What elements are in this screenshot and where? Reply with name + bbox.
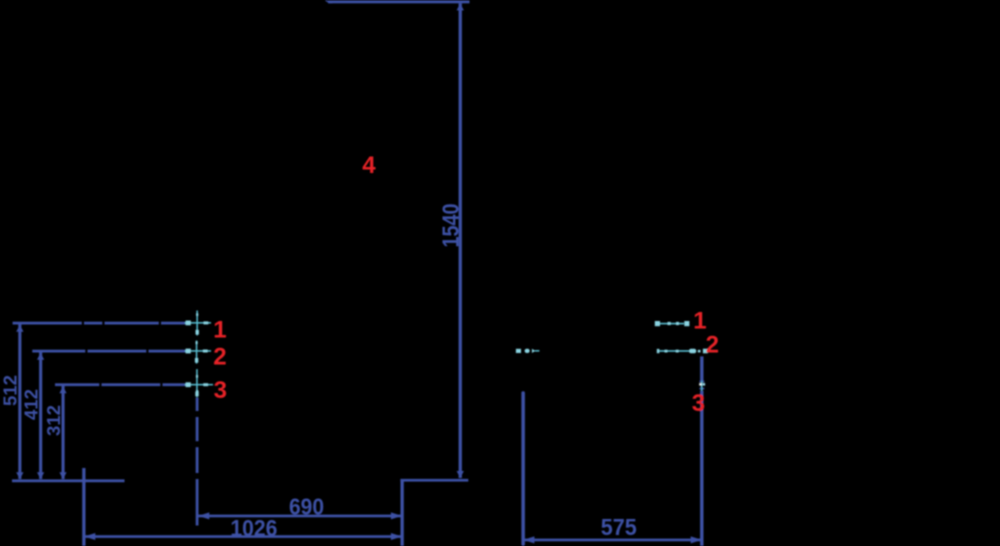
svg-text:1026: 1026 [230, 515, 277, 541]
svg-text:1: 1 [693, 307, 706, 334]
svg-text:3: 3 [692, 390, 705, 417]
svg-text:1540: 1540 [437, 204, 463, 248]
svg-text:1: 1 [213, 316, 226, 343]
svg-text:690: 690 [289, 494, 324, 520]
svg-text:312: 312 [44, 405, 64, 436]
svg-text:575: 575 [601, 514, 637, 540]
svg-text:512: 512 [0, 375, 20, 406]
svg-text:2: 2 [706, 331, 719, 358]
svg-text:3: 3 [214, 377, 227, 404]
svg-text:2: 2 [213, 343, 226, 370]
svg-text:412: 412 [22, 389, 42, 420]
svg-text:4: 4 [362, 152, 376, 179]
